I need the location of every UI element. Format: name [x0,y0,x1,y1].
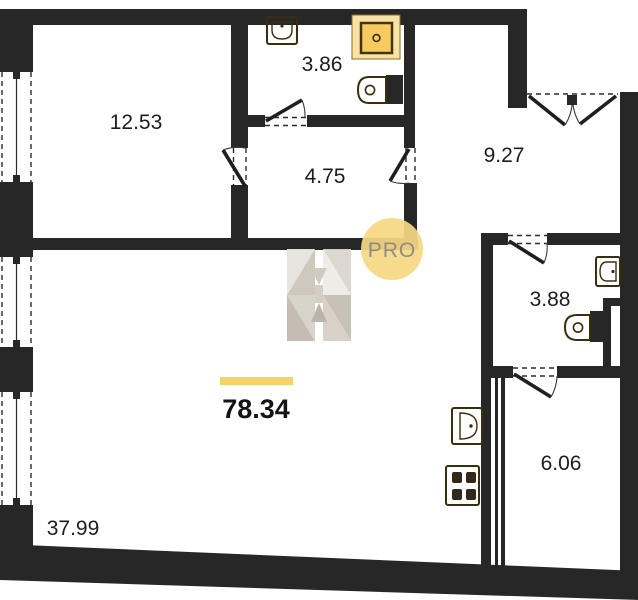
room-area-kitchen-living: 37.99 [47,517,100,540]
room-area-wc: 3.88 [530,288,571,311]
window-bottom [0,392,33,505]
pro-badge: PRO [361,218,423,280]
room-area-hallway: 4.75 [305,165,346,188]
pro-badge-label: PRO [368,239,417,262]
room-area-pantry: 6.06 [541,452,582,475]
floor-plan: PRO 12.53 3.86 4.75 9.27 3.88 6.06 37.99… [0,0,638,600]
total-area-label: 78.34 [222,394,290,424]
total-area-accent-bar [220,377,293,385]
room-area-bathroom: 3.86 [302,53,343,76]
shower-icon [352,15,400,59]
window-top [0,72,33,182]
window-middle [0,257,33,347]
room-area-living-room: 12.53 [110,111,163,134]
total-area: 78.34 [220,377,293,424]
floor-plan-drawing: PRO 12.53 3.86 4.75 9.27 3.88 6.06 37.99… [0,0,638,600]
room-area-entrance-hall: 9.27 [484,144,525,167]
